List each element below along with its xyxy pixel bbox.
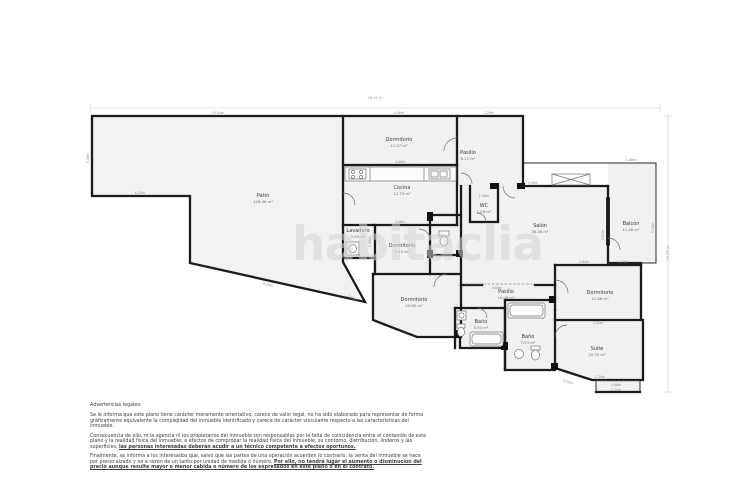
bathtub-icon-bano2	[508, 303, 545, 318]
sink-icon-bano2	[515, 350, 524, 359]
floorplan-page: 36.91 m 20.35 m 19.84m 5.06m 6.29m 8.29m…	[0, 0, 750, 500]
dimension-label: 19.84m	[212, 111, 225, 115]
legal-paragraph-2: Consecuencia de ello, ni la agencia ni l…	[90, 434, 428, 450]
dimension-label: 1.74m	[618, 260, 629, 264]
dimension-label: 2.29m	[484, 111, 495, 115]
dimension-label: 4.00m	[395, 160, 406, 164]
room-area-wc: 1.06 m²	[477, 209, 492, 214]
dimension-label: 1.79m	[595, 375, 606, 379]
kitchen-counter	[345, 167, 456, 181]
dimension-label: 2.06m	[611, 383, 622, 387]
toilet-icon-bano2	[531, 346, 540, 360]
dimension-label: 2.75m	[611, 388, 622, 392]
dimension-label: 4.02m	[593, 321, 604, 325]
room-area-dormitorio-br: 11.86 m²	[591, 296, 609, 301]
dimension-label: 20.35 m	[666, 245, 670, 260]
dimension-label: 4.06m	[394, 111, 405, 115]
room-area-pasillo-top: 8.22 m²	[461, 156, 476, 161]
dimension-label: 1.06m	[479, 194, 490, 198]
room-area-balcon: 11.46 m²	[622, 227, 640, 232]
sink-icon-bano1	[457, 311, 466, 320]
legal-paragraph-3: Finalmente, se informa a los interesados…	[90, 454, 428, 470]
shaft-symbol	[552, 174, 590, 185]
legal-disclaimer: Advertencias legales: Se le informa que …	[90, 403, 428, 475]
room-area-bano2: 7.03 m²	[521, 340, 536, 345]
legal-heading: Advertencias legales:	[90, 403, 428, 408]
room-area-patio: 126.46 m²	[253, 199, 273, 204]
patio-region	[92, 116, 365, 302]
balcon-region	[608, 163, 656, 263]
room-area-dormitorio-top: 11.27 m²	[390, 143, 408, 148]
room-area-pasillo-center: 10.06 m²	[497, 295, 515, 300]
dimension-label: 5.74m	[651, 223, 655, 234]
dimension-label: 3.06m	[528, 181, 539, 185]
dimension-label: 36.91 m	[368, 96, 383, 100]
room-name-balcon: Balcón	[623, 220, 640, 227]
dimension-label: 2.84m	[579, 260, 590, 264]
legal-paragraph-1: Se le informa que este plano tiene carác…	[90, 413, 428, 429]
bathtub-icon-bano1	[470, 332, 503, 346]
dimension-label: 8.29m	[263, 282, 274, 288]
room-area-suite: 20.72 m²	[588, 352, 606, 357]
room-area-dormitorio-bl: 20.60 m²	[405, 303, 423, 308]
dimension-label: 6.29m	[135, 191, 146, 195]
room-area-cocina: 12.73 m²	[393, 191, 411, 196]
toilet-icon-bano1	[457, 324, 465, 337]
dimension-label: 2.05m	[563, 379, 574, 386]
room-area-bano1: 5.04 m²	[474, 325, 489, 330]
dimension-label: 1.06m	[626, 158, 637, 162]
legal-paragraph-2-emphasis: las personas interesadas deberán acudir …	[119, 445, 356, 450]
dimension-label: 4.87m	[601, 230, 605, 241]
dimension-label: 5.06m	[86, 153, 90, 164]
habitaclia-watermark: habitaclia	[292, 221, 543, 268]
